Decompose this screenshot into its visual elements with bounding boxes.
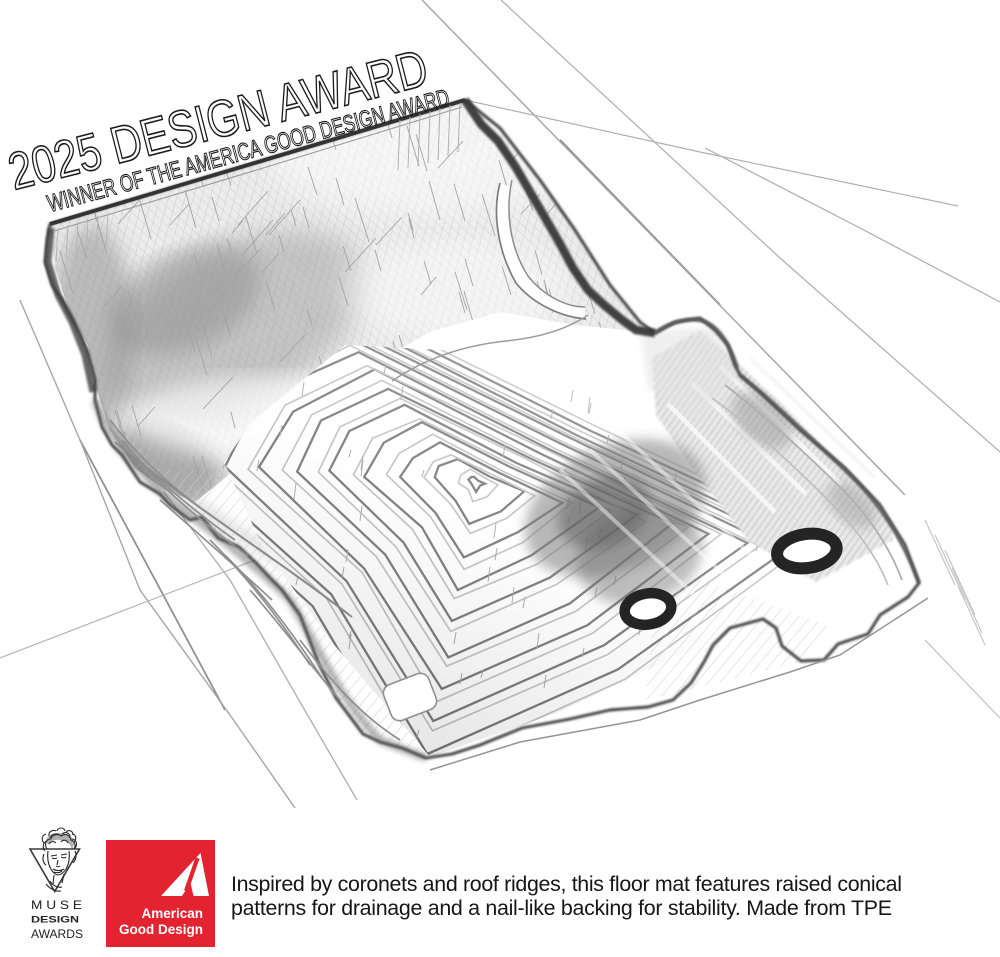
svg-text:Inspired by coronets and roof: Inspired by coronets and roof ridges, th… [231,872,902,896]
svg-text:AWARDS: AWARDS [31,927,83,941]
svg-text:M U S E: M U S E [31,900,82,912]
svg-text:Good Design: Good Design [119,922,203,937]
svg-text:DESIGN: DESIGN [31,915,79,925]
svg-text:patterns for drainage and a na: patterns for drainage and a nail-like ba… [231,896,892,920]
svg-text:American: American [141,906,203,921]
